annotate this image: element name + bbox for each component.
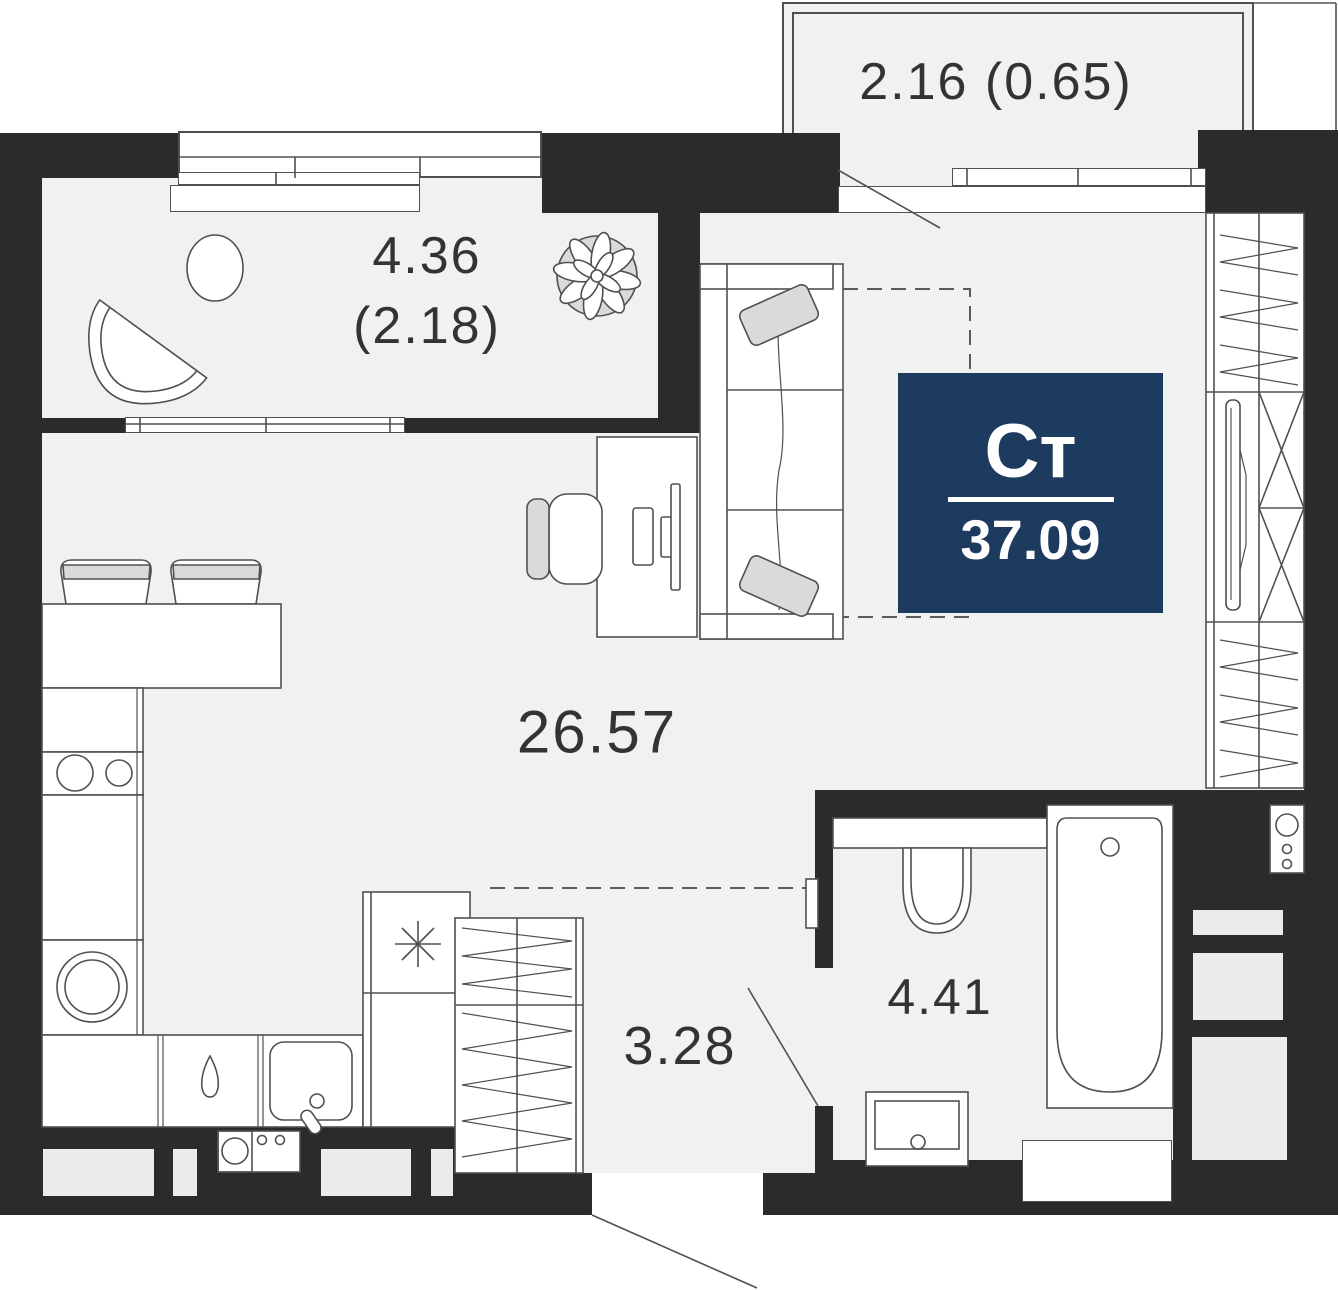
toilet [833, 818, 1047, 933]
fridge [363, 892, 470, 1127]
door-pocket [806, 879, 818, 928]
stove [218, 1131, 300, 1172]
hall-wardrobe [455, 918, 583, 1173]
room-area-label-balcony-top: 2.16 (0.65) [859, 52, 1133, 112]
plant-icon [552, 231, 642, 321]
floorplan-canvas: 2.16 (0.65) 4.36 (2.18) 26.57 3.28 4.41 … [0, 0, 1338, 1290]
room-area-label-living: 26.57 [517, 698, 677, 767]
furniture-overlay [0, 0, 1338, 1290]
room-area-label-bathroom: 4.41 [887, 968, 992, 1026]
unit-total-area: 37.09 [960, 512, 1100, 568]
room-area-label-balcony-left: 4.36 [372, 226, 481, 286]
room-area-label-hall: 3.28 [623, 1015, 736, 1077]
bathroom-door-swing [748, 988, 818, 1106]
kitchen-sink [270, 1042, 352, 1120]
office-chair [527, 494, 602, 584]
entrance-door-swing [592, 1215, 757, 1288]
bathroom-sink [866, 1092, 968, 1166]
badge-divider [948, 497, 1114, 502]
washing-machine-icon [57, 952, 127, 1022]
hob-burner [57, 755, 93, 791]
sofa [700, 264, 843, 639]
right-wardrobe [1206, 213, 1304, 788]
unit-type-label: Ст [984, 418, 1076, 486]
utility-panel [1270, 805, 1304, 873]
kitchen-counter-left [42, 688, 143, 1035]
balcony-door-swing [838, 170, 940, 228]
hob-burner [106, 760, 132, 786]
bathtub [1047, 805, 1173, 1108]
room-area-label-balcony-left-2: (2.18) [353, 296, 501, 356]
bar-table-and-stools [42, 560, 281, 688]
unit-badge: Ст 37.09 [898, 373, 1163, 613]
kitchen-counter-bottom [42, 1035, 363, 1136]
desk [597, 437, 697, 637]
armchair-balcony [83, 235, 243, 411]
